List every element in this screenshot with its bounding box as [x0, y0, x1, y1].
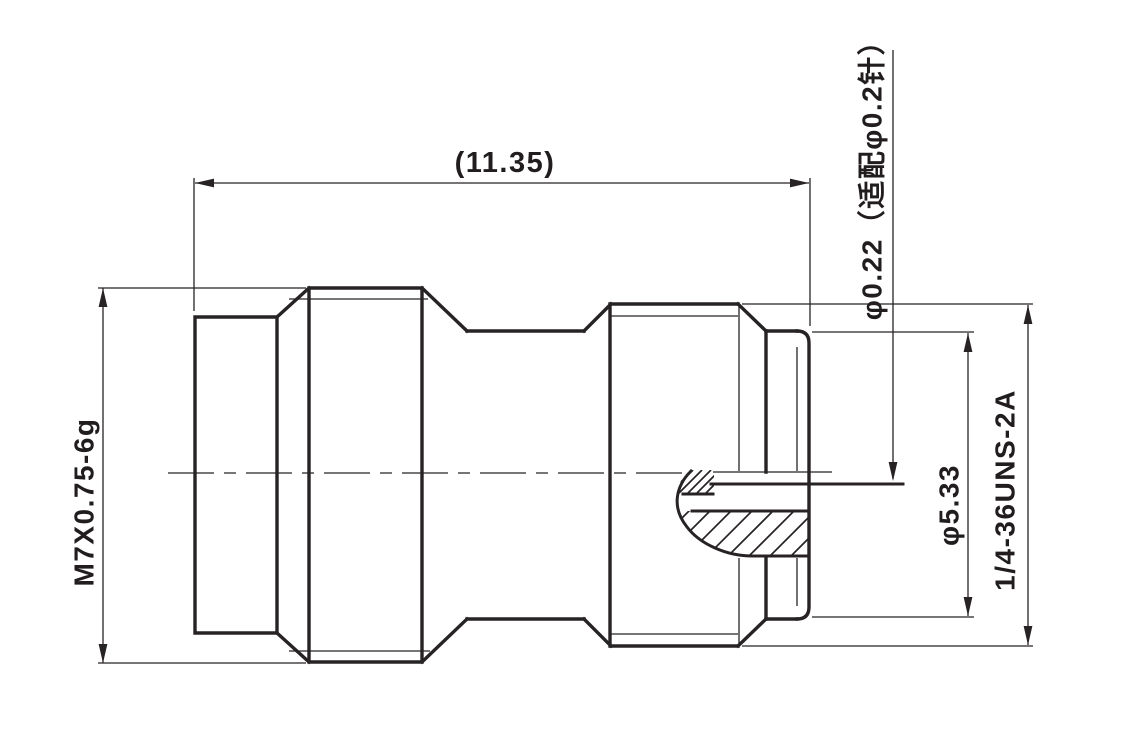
drawing-canvas: (11.35) M7X0.75-6g φ0.22（适配φ0.2针） φ5.33 [0, 0, 1121, 739]
pin-diameter-label: φ0.22（适配φ0.2针） [856, 26, 888, 320]
interface-diameter-label: φ5.33 [934, 464, 965, 546]
overall-length-label: (11.35) [455, 147, 556, 179]
right-thread-label: 1/4-36UNS-2A [990, 389, 1021, 591]
drawing-sheet: (11.35) M7X0.75-6g φ0.22（适配φ0.2针） φ5.33 [0, 0, 1121, 739]
sheet-background [0, 0, 1121, 739]
left-thread-label: M7X0.75-6g [69, 417, 100, 586]
